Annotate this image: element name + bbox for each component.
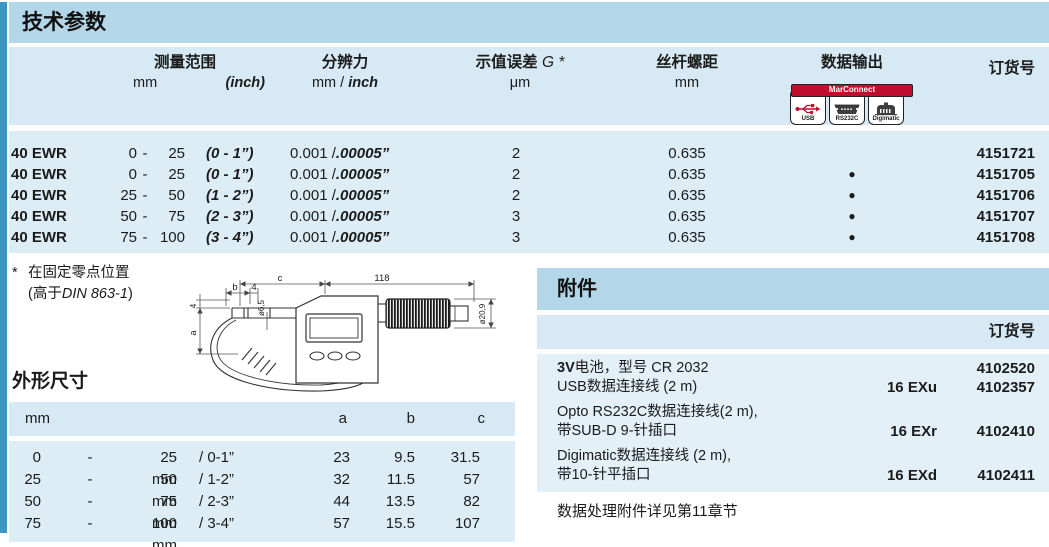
range-inch-cell: (3 - 4”) (193, 227, 290, 248)
page-edge-stripe (0, 2, 7, 533)
table-row: 75 - 100 mm / 3-4” 57 15.5 107 (9, 513, 515, 535)
dim-label-c: c (278, 273, 283, 284)
dimensions-table-header: mm a b c (9, 402, 515, 436)
rs232c-icon (833, 103, 861, 116)
range-to-cell: 75 (153, 206, 185, 227)
list-item: Digimatic数据连接线 (2 m), 带10-针平插口 16 EXd 41… (537, 447, 1049, 485)
data-output-dot (772, 143, 932, 164)
data-output-dot: ● (772, 164, 932, 185)
header-data-output: 数据输出 MarConnect (772, 52, 932, 74)
resolution-inch: .00005” (336, 208, 389, 225)
accessory-code: 16 EXr (857, 422, 937, 441)
accessory-name-text: 电池，型号 CR 2032 (575, 360, 709, 376)
resolution-cell: 0.001 /.00005” (290, 227, 430, 248)
range-from-cell: 75 (81, 227, 137, 248)
model-cell: 40 EWR (11, 185, 81, 206)
accessories-title: 附件 (537, 268, 1049, 310)
dim-label-b: b (232, 282, 237, 293)
range-from-cell: 50 (81, 206, 137, 227)
footnote-close-paren: ) (128, 286, 133, 302)
dims-from: 75 (11, 513, 41, 547)
resolution-mm: 0.001 / (290, 187, 336, 204)
pitch-cell: 0.635 (602, 185, 772, 206)
pitch-cell: 0.635 (602, 206, 772, 227)
dims-dash: - (41, 513, 139, 547)
dim-label-4-top: 4 (251, 282, 256, 293)
dim-label-dia6-5: ø6,5 (257, 299, 266, 316)
table-row: 40 EWR 0 - 25 (0 - 1”) 0.001 /.00005” 2 … (9, 143, 1049, 164)
header-resolution: 分辨力 mm / inch (280, 52, 410, 92)
asterisk: * (12, 263, 28, 284)
resolution-cell: 0.001 /.00005” (290, 185, 430, 206)
dims-unit-mm: mm (25, 410, 50, 427)
digimatic-icon (873, 102, 899, 116)
dimensions-table-body: 0 - 25 mm / 0-1” 23 9.5 31.5 25 - 50 mm … (9, 441, 515, 542)
table-row: 40 EWR 25 - 50 (1 - 2”) 0.001 /.00005” 2… (9, 185, 1049, 206)
range-to-cell: 50 (153, 185, 185, 206)
dims-col-c: c (465, 410, 485, 427)
header-spindle-pitch: 丝杆螺距 mm (605, 52, 769, 92)
order-number-cell: 4151708 (932, 227, 1049, 248)
accessory-name: Opto RS232C数据连接线(2 m), 带SUB-D 9-针插口 (557, 403, 857, 441)
range-dash: - (137, 143, 153, 164)
spindle-pitch-label: 丝杆螺距 (605, 52, 769, 74)
resolution-cell: 0.001 /.00005” (290, 206, 430, 227)
dims-to: 100 mm (139, 513, 177, 547)
marconnect-banner: MarConnect (791, 84, 913, 97)
accessory-name-bold: 3V (557, 360, 575, 376)
accessory-name-text: Digimatic数据连接线 (2 m), (557, 447, 857, 466)
resolution-mm: 0.001 / (290, 166, 336, 183)
footnote-line2: (高于DIN 863-1) (28, 284, 133, 305)
footnote-line1: 在固定零点位置 (28, 265, 130, 281)
resolution-unit-inch: inch (348, 75, 378, 91)
tech-params-section: 技术参数 测量范围 mm (inch) 分辨力 mm / inch 示值误差 G… (9, 2, 1049, 253)
footnote-open-paren: (高于 (28, 286, 62, 302)
tech-table-header: 测量范围 mm (inch) 分辨力 mm / inch 示值误差 G * μm… (9, 47, 1049, 125)
accessory-name: Digimatic数据连接线 (2 m), 带10-针平插口 (557, 447, 857, 485)
accessory-order-number: 4102410 (937, 422, 1049, 441)
error-cell: 2 (430, 185, 602, 206)
resolution-inch: .00005” (336, 229, 389, 246)
accessories-section: 附件 订货号 3V电池，型号 CR 2032 4102520 USB数据连接线 … (537, 268, 1049, 521)
accessories-note: 数据处理附件详见第11章节 (537, 500, 1049, 521)
usb-icon (795, 101, 821, 116)
accessory-order-number: 4102520 (937, 359, 1049, 378)
dim-label-a: a (188, 330, 199, 336)
error-symbol: G * (538, 54, 565, 71)
range-from-cell: 25 (81, 185, 137, 206)
catalog-page: 技术参数 测量范围 mm (inch) 分辨力 mm / inch 示值误差 G… (0, 0, 1049, 547)
header-error: 示值误差 G * μm (438, 52, 602, 92)
dims-b: 15.5 (350, 513, 415, 547)
model-cell: 40 EWR (11, 164, 81, 185)
order-number-cell: 4151705 (932, 164, 1049, 185)
zero-position-footnote: *在固定零点位置 (高于DIN 863-1) (12, 263, 133, 305)
resolution-mm: 0.001 / (290, 208, 336, 225)
accessory-code: 16 EXu (857, 378, 937, 397)
table-row: 0 - 25 mm / 0-1” 23 9.5 31.5 (9, 447, 515, 469)
table-row: 25 - 50 mm / 1-2” 32 11.5 57 (9, 469, 515, 491)
range-from-cell: 0 (81, 164, 137, 185)
pitch-cell: 0.635 (602, 227, 772, 248)
accessory-name: 3V电池，型号 CR 2032 (557, 359, 857, 378)
range-dash: - (137, 164, 153, 185)
table-row: 40 EWR 50 - 75 (2 - 3”) 0.001 /.00005” 3… (9, 206, 1049, 227)
list-item: Opto RS232C数据连接线(2 m), 带SUB-D 9-针插口 16 E… (537, 403, 1049, 441)
order-number-cell: 4151706 (932, 185, 1049, 206)
accessory-code: 16 EXd (857, 466, 937, 485)
usb-label: USB (802, 116, 815, 123)
data-output-dot: ● (772, 227, 932, 248)
model-cell: 40 EWR (11, 227, 81, 248)
dims-c: 107 (415, 513, 480, 547)
accessory-name-text: USB数据连接线 (2 m) (557, 379, 697, 395)
order-number-cell: 4151721 (932, 143, 1049, 164)
micrometer-schematic: c 118 b 4 ø6,5 4 a ø20,9 (186, 256, 516, 398)
resolution-mm: 0.001 / (290, 229, 336, 246)
range-unit-mm: mm (133, 74, 157, 92)
error-label: 示值误差 (476, 54, 538, 71)
model-cell: 40 EWR (11, 143, 81, 164)
resolution-unit-mm: mm / (312, 75, 348, 91)
range-to-cell: 25 (153, 164, 185, 185)
dim-label-dia20-9: ø20,9 (478, 303, 487, 324)
dimensions-section-title: 外形尺寸 (12, 366, 88, 393)
resolution-cell: 0.001 /.00005” (290, 143, 430, 164)
model-cell: 40 EWR (11, 206, 81, 227)
resolution-inch: .00005” (336, 145, 389, 162)
dim-label-118: 118 (374, 273, 389, 284)
accessory-name-text2: 带10-针平插口 (557, 466, 857, 485)
dims-inch: / 3-4” (199, 513, 294, 547)
accessories-order-header: 订货号 (537, 315, 1049, 349)
error-cell: 2 (430, 164, 602, 185)
range-unit-inch: (inch) (226, 74, 265, 92)
range-inch-cell: (1 - 2”) (193, 185, 290, 206)
rs232c-label: RS232C (836, 116, 859, 123)
accessory-name-text: Opto RS232C数据连接线(2 m), (557, 403, 857, 422)
error-cell: 3 (430, 227, 602, 248)
range-to-cell: 100 (153, 227, 185, 248)
marconnect-badge: MarConnect US (790, 84, 914, 128)
page-title: 技术参数 (9, 2, 1049, 43)
resolution-inch: .00005” (336, 166, 389, 183)
header-measuring-range: 测量范围 mm (inch) (95, 52, 275, 92)
accessory-name: USB数据连接线 (2 m) (557, 378, 857, 397)
measuring-range-label: 测量范围 (95, 52, 275, 74)
range-from-cell: 0 (81, 143, 137, 164)
dimensions-table: mm a b c 0 - 25 mm / 0-1” 23 9.5 31.5 25… (9, 402, 515, 542)
accessory-order-number: 4102357 (937, 378, 1049, 397)
accessories-list: 3V电池，型号 CR 2032 4102520 USB数据连接线 (2 m) 1… (537, 354, 1049, 492)
accessory-name-text2: 带SUB-D 9-针插口 (557, 422, 857, 441)
order-number-header: 订货号 (988, 56, 1035, 78)
range-dash: - (137, 227, 153, 248)
range-to-cell: 25 (153, 143, 185, 164)
resolution-label: 分辨力 (280, 52, 410, 74)
micrometer-drawing: c 118 b 4 ø6,5 4 a ø20,9 (186, 256, 516, 398)
range-inch-cell: (0 - 1”) (193, 143, 290, 164)
digimatic-label: Digimatic (872, 116, 899, 123)
pitch-cell: 0.635 (602, 143, 772, 164)
error-unit: μm (438, 74, 602, 92)
pitch-cell: 0.635 (602, 164, 772, 185)
dims-col-a: a (327, 410, 347, 427)
dim-label-4-left: 4 (189, 303, 198, 308)
spindle-pitch-unit: mm (605, 74, 769, 92)
order-number-cell: 4151707 (932, 206, 1049, 227)
error-cell: 3 (430, 206, 602, 227)
table-row: 40 EWR 0 - 25 (0 - 1”) 0.001 /.00005” 2 … (9, 164, 1049, 185)
din-standard: DIN 863-1 (62, 286, 128, 302)
range-inch-cell: (2 - 3”) (193, 206, 290, 227)
list-item: USB数据连接线 (2 m) 16 EXu 4102357 (537, 378, 1049, 397)
table-row: 50 - 75 mm / 2-3” 44 13.5 82 (9, 491, 515, 513)
dims-col-b: b (395, 410, 415, 427)
list-item: 3V电池，型号 CR 2032 4102520 (537, 359, 1049, 378)
resolution-mm: 0.001 / (290, 145, 336, 162)
data-output-dot: ● (772, 206, 932, 227)
accessory-order-number: 4102411 (937, 466, 1049, 485)
dims-a: 57 (294, 513, 350, 547)
range-inch-cell: (0 - 1”) (193, 164, 290, 185)
resolution-inch: .00005” (336, 187, 389, 204)
range-dash: - (137, 206, 153, 227)
table-row: 40 EWR 75 - 100 (3 - 4”) 0.001 /.00005” … (9, 227, 1049, 248)
data-output-dot: ● (772, 185, 932, 206)
resolution-cell: 0.001 /.00005” (290, 164, 430, 185)
range-dash: - (137, 185, 153, 206)
data-output-label: 数据输出 (772, 52, 932, 74)
tech-table-body: 40 EWR 0 - 25 (0 - 1”) 0.001 /.00005” 2 … (9, 131, 1049, 253)
error-cell: 2 (430, 143, 602, 164)
